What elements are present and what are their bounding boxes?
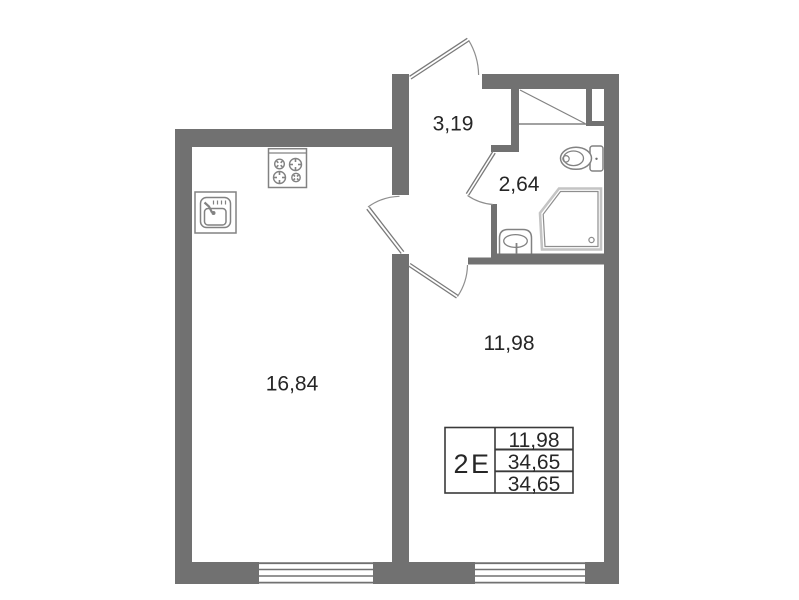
svg-text:11,98: 11,98 (484, 332, 535, 355)
svg-text:11,98: 11,98 (509, 429, 560, 452)
svg-text:2,64: 2,64 (499, 173, 540, 196)
svg-text:16,84: 16,84 (266, 373, 319, 396)
svg-text:34,65: 34,65 (508, 473, 561, 496)
svg-text:3,19: 3,19 (433, 113, 474, 136)
svg-text:2Е: 2Е (454, 449, 492, 479)
svg-text:34,65: 34,65 (508, 451, 561, 474)
